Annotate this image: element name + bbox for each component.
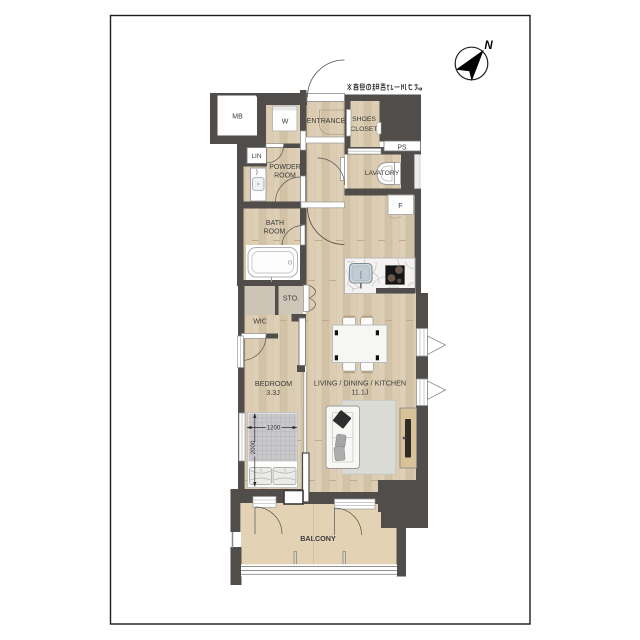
svg-text:LAVATORY: LAVATORY [365, 170, 400, 177]
svg-text:2000: 2000 [251, 440, 257, 454]
svg-text:11.1J: 11.1J [351, 388, 368, 397]
svg-text:1200: 1200 [267, 426, 281, 432]
svg-text:SHOES: SHOES [352, 116, 376, 123]
svg-text:BEDROOM: BEDROOM [255, 379, 292, 388]
svg-text:N: N [484, 40, 493, 52]
svg-text:CLOSET: CLOSET [350, 126, 377, 133]
svg-text:LIVING / DINING / KITCHEN: LIVING / DINING / KITCHEN [314, 379, 406, 388]
svg-text:STO.: STO. [283, 296, 299, 303]
svg-text:POWDER: POWDER [269, 164, 301, 171]
svg-text:WIC: WIC [253, 319, 267, 326]
svg-text:BALCONY: BALCONY [300, 534, 336, 543]
svg-text:ENTRANCE: ENTRANCE [307, 118, 346, 125]
svg-text:MB: MB [232, 114, 243, 121]
svg-text:F: F [398, 201, 403, 210]
svg-text:ROOM: ROOM [264, 229, 286, 236]
svg-text:W: W [282, 119, 289, 126]
svg-text:3.3J: 3.3J [266, 388, 280, 397]
svg-text:PS: PS [397, 145, 407, 152]
svg-text:ROOM: ROOM [274, 173, 296, 180]
svg-text:LIN: LIN [251, 153, 261, 160]
svg-text:BATH: BATH [266, 220, 284, 227]
